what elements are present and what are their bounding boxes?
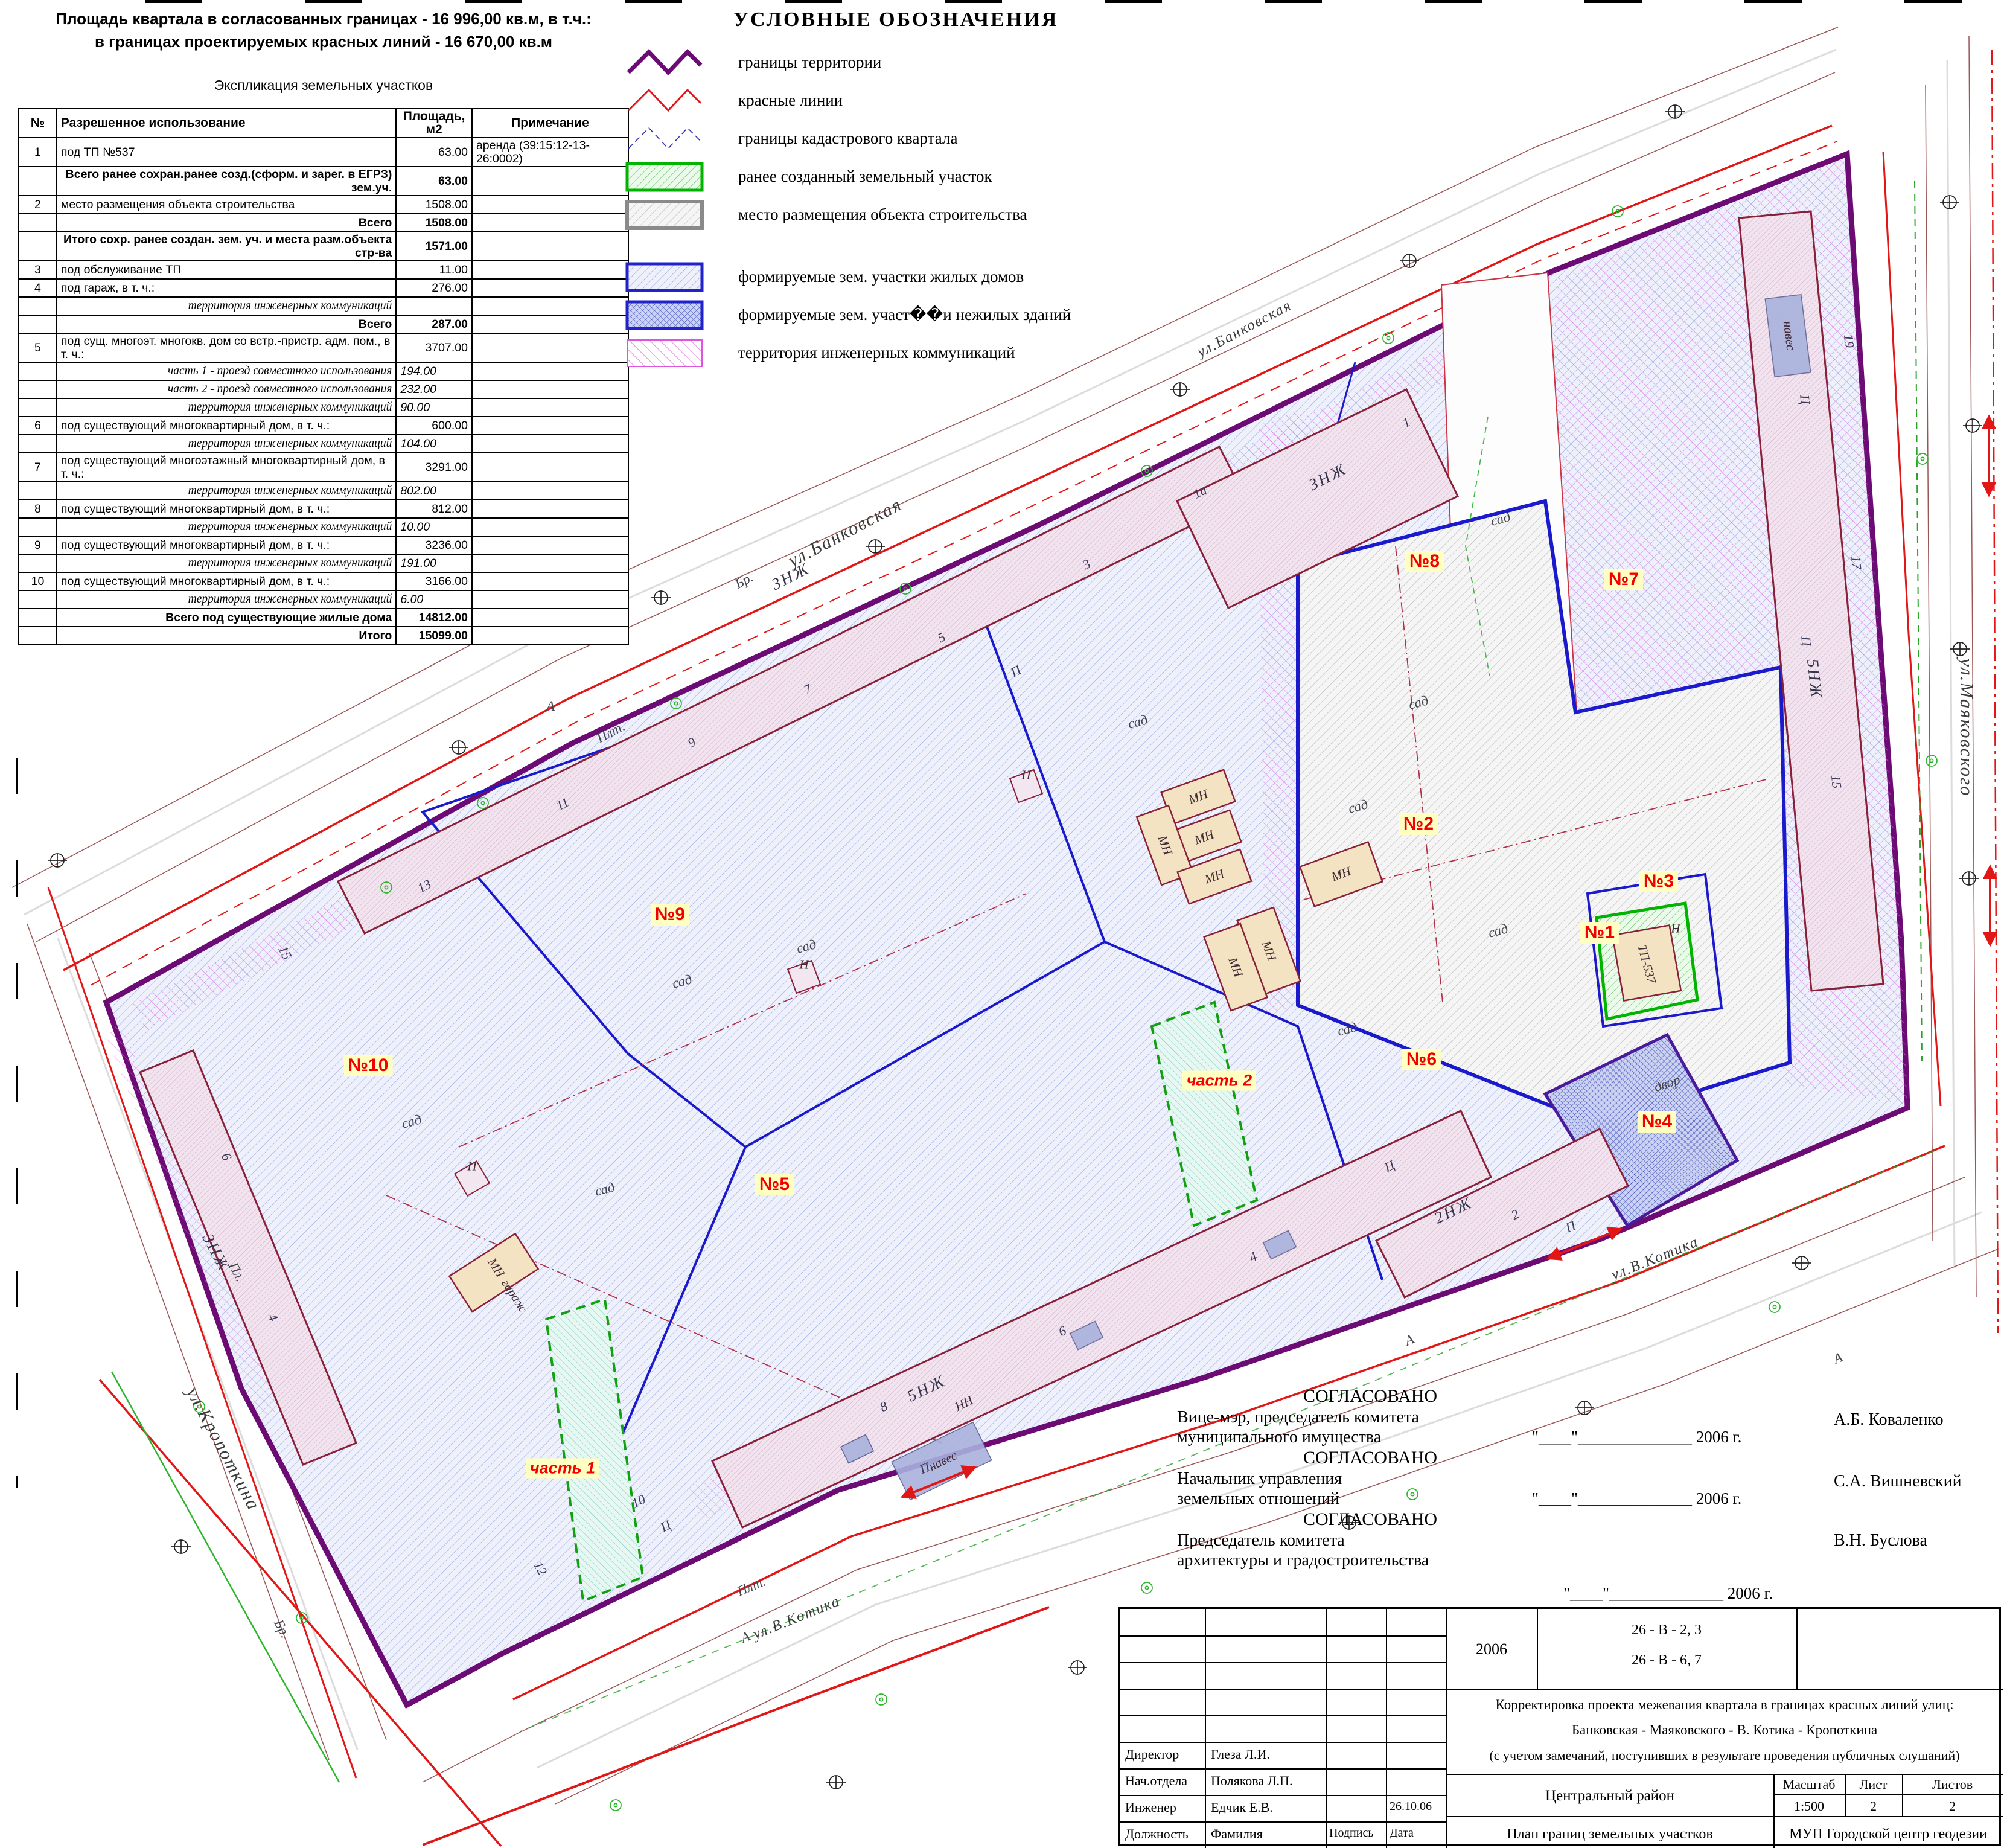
table-row: Итого 15099.00 bbox=[19, 627, 628, 645]
row-area: 1571.00 bbox=[396, 232, 472, 261]
staff-date: 26.10.06 bbox=[1390, 1800, 1432, 1814]
row-area: 14812.00 bbox=[396, 609, 472, 627]
row-num: 3 bbox=[19, 261, 57, 279]
n-label: Н bbox=[1671, 921, 1680, 936]
parcel-label-2: №2 bbox=[1399, 813, 1438, 835]
row-use: территория инженерных коммуникаций bbox=[57, 518, 396, 536]
row-use: территория инженерных коммуникаций bbox=[57, 297, 396, 315]
parcel-label-1: №1 bbox=[1580, 922, 1619, 944]
table-row: Всего под существующие жилые дома 14812.… bbox=[19, 609, 628, 627]
table-row: территория инженерных коммуникаций 104.0… bbox=[19, 435, 628, 453]
row-area bbox=[396, 297, 472, 315]
utility-territory-swatch bbox=[625, 336, 704, 370]
row-area: 3166.00 bbox=[396, 572, 472, 590]
table-row: 4 под гараж, в т. ч.: 276.00 bbox=[19, 279, 628, 297]
residential-parcels-swatch bbox=[625, 260, 704, 294]
row-area: 3707.00 bbox=[396, 333, 472, 362]
row-num bbox=[19, 167, 57, 196]
table-row: территория инженерных коммуникаций 802.0… bbox=[19, 482, 628, 500]
row-use: под гараж, в т. ч.: bbox=[57, 279, 396, 297]
approver-role: Начальник управления bbox=[1177, 1469, 1342, 1489]
row-area: 191.00 bbox=[396, 554, 472, 572]
row-note bbox=[472, 315, 628, 333]
legend-item: ранее созданный земельный участок bbox=[625, 158, 1162, 196]
row-note bbox=[472, 590, 628, 609]
org-cell: МУП Городской центр геодезии bbox=[1773, 1826, 2003, 1843]
row-note bbox=[472, 261, 628, 279]
approver-role: муниципального имущества bbox=[1177, 1428, 1381, 1447]
table-row: 2 место размещения объекта строительства… bbox=[19, 196, 628, 214]
row-note bbox=[472, 500, 628, 518]
scale-value: 1:500 bbox=[1773, 1798, 1845, 1814]
row-note bbox=[472, 167, 628, 196]
legend-item: место размещения объекта строительства bbox=[625, 196, 1162, 234]
row-use: место размещения объекта строительства bbox=[57, 196, 396, 214]
row-area: 104.00 bbox=[396, 435, 472, 453]
date-line: "____"______________ 2006 г. bbox=[1563, 1584, 1773, 1603]
existing-parcel-swatch bbox=[625, 160, 704, 194]
table-row: 1 под ТП №537 63.00 аренда (39:15:12-13-… bbox=[19, 138, 628, 167]
staff-name: Глеза Л.И. bbox=[1211, 1747, 1270, 1762]
table-row: территория инженерных коммуникаций 6.00 bbox=[19, 590, 628, 609]
row-area: 802.00 bbox=[396, 482, 472, 500]
table-row: 8 под существующий многоквартирный дом, … bbox=[19, 500, 628, 518]
date-line: "____"______________ 2006 г. bbox=[1532, 1428, 1741, 1447]
row-area: 10.00 bbox=[396, 518, 472, 536]
sheet-label: Лист bbox=[1845, 1777, 1902, 1792]
approver-name: С.А. Вишневский bbox=[1834, 1472, 1962, 1491]
approvals-block: СОГЛАСОВАНО Вице-мэр, председатель комит… bbox=[1177, 1372, 2001, 1613]
row-note bbox=[472, 453, 628, 482]
row-note bbox=[472, 435, 628, 453]
row-note bbox=[472, 398, 628, 417]
parcel-label-10: №10 bbox=[344, 1055, 393, 1076]
axis-marker: А bbox=[546, 699, 555, 714]
row-area: 812.00 bbox=[396, 500, 472, 518]
row-area: 1508.00 bbox=[396, 214, 472, 232]
row-num bbox=[19, 609, 57, 627]
legend-item: границы территории bbox=[625, 43, 1162, 82]
row-use: Итого сохр. ранее создан. зем. уч. и мес… bbox=[57, 232, 396, 261]
row-area: 63.00 bbox=[396, 138, 472, 167]
row-num: 4 bbox=[19, 279, 57, 297]
row-num bbox=[19, 214, 57, 232]
row-use: Всего ранее сохран.ранее созд.(сформ. и … bbox=[57, 167, 396, 196]
table-row: 7 под существующий многоэтажный многоква… bbox=[19, 453, 628, 482]
row-use: Всего под существующие жилые дома bbox=[57, 609, 396, 627]
parcel-label-6: №6 bbox=[1402, 1049, 1441, 1070]
table-row: 9 под существующий многоквартирный дом, … bbox=[19, 536, 628, 554]
staff-role: Директор bbox=[1125, 1747, 1179, 1762]
table-row: часть 1 - проезд совместного использован… bbox=[19, 362, 628, 380]
legend-title: УСЛОВНЫЕ ОБОЗНАЧЕНИЯ bbox=[733, 8, 1162, 31]
legend-item: формируемые зем. участ��и нежилых зданий bbox=[625, 296, 1162, 334]
sheet-ref: 26 - В - 6, 7 bbox=[1537, 1652, 1796, 1669]
parcel-label-7: №7 bbox=[1604, 569, 1643, 590]
row-note bbox=[472, 380, 628, 398]
row-use: территория инженерных коммуникаций bbox=[57, 482, 396, 500]
row-use: под существующий многоквартирный дом, в … bbox=[57, 536, 396, 554]
table-row: территория инженерных коммуникаций 10.00 bbox=[19, 518, 628, 536]
row-use: территория инженерных коммуникаций bbox=[57, 554, 396, 572]
footer-role-label: Должность bbox=[1125, 1826, 1189, 1842]
approver-role: земельных отношений bbox=[1177, 1489, 1339, 1509]
table-header-row: № Разрешенное использование Площадь,м2 П… bbox=[19, 109, 628, 138]
row-use: под сущ. многоэт. многокв. дом со встр.-… bbox=[57, 333, 396, 362]
row-area: 3236.00 bbox=[396, 536, 472, 554]
part-2-label: часть 2 bbox=[1182, 1071, 1256, 1091]
col-header-num: № bbox=[19, 109, 57, 138]
staff-name: Едчик Е.В. bbox=[1211, 1800, 1273, 1815]
row-area: 11.00 bbox=[396, 261, 472, 279]
parcel-label-9: №9 bbox=[651, 904, 689, 926]
row-num bbox=[19, 590, 57, 609]
row-num bbox=[19, 482, 57, 500]
project-title-1: Корректировка проекта межевания квартала… bbox=[1446, 1697, 2003, 1713]
row-area: 15099.00 bbox=[396, 627, 472, 645]
row-note bbox=[472, 297, 628, 315]
row-note bbox=[472, 333, 628, 362]
letter-marker: Ц bbox=[1796, 394, 1813, 406]
parcel-label-4: №4 bbox=[1638, 1111, 1676, 1133]
row-note bbox=[472, 362, 628, 380]
row-num bbox=[19, 380, 57, 398]
year-cell: 2006 bbox=[1446, 1640, 1537, 1658]
table-row: 5 под сущ. многоэт. многокв. дом со встр… bbox=[19, 333, 628, 362]
sheet-trim-marks-top bbox=[145, 0, 2003, 3]
territory-boundary-swatch bbox=[625, 46, 704, 80]
footer-sign-label: Подпись bbox=[1329, 1826, 1373, 1840]
row-note bbox=[472, 518, 628, 536]
cadastral-boundary-swatch bbox=[625, 122, 704, 156]
row-use: часть 2 - проезд совместного использован… bbox=[57, 380, 396, 398]
table-row: территория инженерных коммуникаций bbox=[19, 297, 628, 315]
table-row: Итого сохр. ранее создан. зем. уч. и мес… bbox=[19, 232, 628, 261]
plan-sheet: №1 №2 №3 №4 №5 №6 №7 №8 №9 №10 часть 1 ч… bbox=[0, 0, 2004, 1848]
explication-table: № Разрешенное использование Площадь,м2 П… bbox=[18, 108, 629, 645]
staff-name: Полякова Л.П. bbox=[1211, 1773, 1292, 1789]
table-title: Экспликация земельных участков bbox=[18, 77, 629, 94]
table-row: 3 под обслуживание ТП 11.00 bbox=[19, 261, 628, 279]
row-num: 2 bbox=[19, 196, 57, 214]
approved-stamp: СОГЛАСОВАНО bbox=[1249, 1386, 1491, 1407]
doc-name-cell: План границ земельных участков bbox=[1446, 1826, 1773, 1843]
row-num: 8 bbox=[19, 500, 57, 518]
row-use: часть 1 - проезд совместного использован… bbox=[57, 362, 396, 380]
legend: УСЛОВНЫЕ ОБОЗНАЧЕНИЯ границы территории … bbox=[625, 5, 1162, 372]
row-note bbox=[472, 417, 628, 435]
row-note bbox=[472, 214, 628, 232]
red-lines-swatch bbox=[625, 84, 704, 118]
approver-role: архитектуры и градостроительства bbox=[1177, 1551, 1429, 1570]
area-summary-line-1: Площадь квартала в согласованных граница… bbox=[18, 7, 629, 30]
row-note bbox=[472, 196, 628, 214]
footer-date-label: Дата bbox=[1390, 1826, 1414, 1840]
row-use: под существующий многоквартирный дом, в … bbox=[57, 572, 396, 590]
table-row: Всего 287.00 bbox=[19, 315, 628, 333]
staff-role: Нач.отдела bbox=[1125, 1773, 1187, 1789]
street-mayakovskogo: ул.Маяковского bbox=[1956, 658, 1977, 797]
row-note bbox=[472, 232, 628, 261]
approved-stamp: СОГЛАСОВАНО bbox=[1249, 1509, 1491, 1530]
explication-block: Площадь квартала в согласованных граница… bbox=[18, 7, 629, 645]
col-header-note: Примечание bbox=[472, 109, 628, 138]
row-area: 90.00 bbox=[396, 398, 472, 417]
row-note: аренда (39:15:12-13-26:0002) bbox=[472, 138, 628, 167]
row-use: Всего bbox=[57, 214, 396, 232]
row-num: 5 bbox=[19, 333, 57, 362]
row-num bbox=[19, 362, 57, 380]
approver-role: Вице-мэр, председатель комитета bbox=[1177, 1408, 1419, 1427]
sheet-value: 2 bbox=[1845, 1798, 1902, 1814]
row-num: 10 bbox=[19, 572, 57, 590]
footer-name-label: Фамилия bbox=[1211, 1826, 1263, 1842]
row-note bbox=[472, 572, 628, 590]
row-num bbox=[19, 232, 57, 261]
row-note bbox=[472, 554, 628, 572]
sheet-ref: 26 - В - 2, 3 bbox=[1537, 1622, 1796, 1639]
title-block: Директор Глеза Л.И. Нач.отдела Полякова … bbox=[1118, 1607, 2001, 1846]
row-num: 9 bbox=[19, 536, 57, 554]
row-area: 194.00 bbox=[396, 362, 472, 380]
row-use: территория инженерных коммуникаций bbox=[57, 435, 396, 453]
table-row: 10 под существующий многоквартирный дом,… bbox=[19, 572, 628, 590]
legend-item: формируемые зем. участки жилых домов bbox=[625, 258, 1162, 296]
row-use: территория инженерных коммуникаций bbox=[57, 590, 396, 609]
row-area: 287.00 bbox=[396, 315, 472, 333]
row-area: 1508.00 bbox=[396, 196, 472, 214]
n-label: Н bbox=[1021, 768, 1030, 783]
n-label: Н bbox=[799, 958, 808, 973]
table-row: территория инженерных коммуникаций 90.00 bbox=[19, 398, 628, 417]
house-number: 19 bbox=[1840, 334, 1857, 349]
part-1-label: часть 1 bbox=[526, 1459, 599, 1479]
row-area: 276.00 bbox=[396, 279, 472, 297]
legend-item: красные линии bbox=[625, 82, 1162, 120]
letter-marker: Ц bbox=[1798, 636, 1814, 647]
row-num: 1 bbox=[19, 138, 57, 167]
row-num bbox=[19, 297, 57, 315]
row-note bbox=[472, 627, 628, 645]
row-note bbox=[472, 279, 628, 297]
row-use: под существующий многоквартирный дом, в … bbox=[57, 500, 396, 518]
approver-name: А.Б. Коваленко bbox=[1834, 1410, 1944, 1430]
row-use: под существующий многоэтажный многокварт… bbox=[57, 453, 396, 482]
row-note bbox=[472, 536, 628, 554]
district-cell: Центральный район bbox=[1446, 1788, 1773, 1805]
row-num bbox=[19, 435, 57, 453]
table-row: Всего ранее сохран.ранее созд.(сформ. и … bbox=[19, 167, 628, 196]
row-use: под существующий многоквартирный дом, в … bbox=[57, 417, 396, 435]
approved-stamp: СОГЛАСОВАНО bbox=[1249, 1448, 1491, 1468]
row-num bbox=[19, 554, 57, 572]
row-num bbox=[19, 315, 57, 333]
legend-item: территория инженерных коммуникаций bbox=[625, 334, 1162, 372]
project-title-2: Банковская - Маяковского - В. Котика - К… bbox=[1446, 1722, 2003, 1738]
row-use: территория инженерных коммуникаций bbox=[57, 398, 396, 417]
row-num bbox=[19, 398, 57, 417]
staff-role: Инженер bbox=[1125, 1800, 1176, 1815]
table-row: территория инженерных коммуникаций 191.0… bbox=[19, 554, 628, 572]
col-header-area: Площадь,м2 bbox=[396, 109, 472, 138]
row-area: 6.00 bbox=[396, 590, 472, 609]
scale-label: Масштаб bbox=[1773, 1777, 1845, 1792]
nonresidential-parcels-swatch bbox=[625, 298, 704, 332]
row-num bbox=[19, 518, 57, 536]
approver-role: Председатель комитета bbox=[1177, 1531, 1345, 1550]
parcel-label-8: №8 bbox=[1405, 551, 1444, 572]
date-line: "____"______________ 2006 г. bbox=[1532, 1489, 1741, 1508]
table-row: Всего 1508.00 bbox=[19, 214, 628, 232]
n-label: Н bbox=[467, 1159, 476, 1174]
sheet-trim-marks-left bbox=[16, 758, 18, 1488]
sheets-label: Листов bbox=[1902, 1777, 2003, 1792]
house-number: 17 bbox=[1848, 555, 1865, 571]
sheets-value: 2 bbox=[1902, 1798, 2003, 1814]
row-num: 6 bbox=[19, 417, 57, 435]
row-use: Итого bbox=[57, 627, 396, 645]
row-area: 600.00 bbox=[396, 417, 472, 435]
row-note bbox=[472, 482, 628, 500]
construction-site-swatch bbox=[625, 198, 704, 232]
row-area: 63.00 bbox=[396, 167, 472, 196]
table-row: часть 2 - проезд совместного использован… bbox=[19, 380, 628, 398]
row-num bbox=[19, 627, 57, 645]
table-row: 6 под существующий многоквартирный дом, … bbox=[19, 417, 628, 435]
row-use: под ТП №537 bbox=[57, 138, 396, 167]
row-area: 232.00 bbox=[396, 380, 472, 398]
approver-name: В.Н. Буслова bbox=[1834, 1531, 1927, 1550]
area-summary-line-2: в границах проектируемых красных линий -… bbox=[18, 30, 629, 53]
row-note bbox=[472, 609, 628, 627]
project-title-3: (с учетом замечаний, поступивших в резул… bbox=[1446, 1748, 2003, 1763]
row-area: 3291.00 bbox=[396, 453, 472, 482]
parcel-label-3: №3 bbox=[1639, 871, 1678, 892]
house-number: 15 bbox=[1828, 775, 1845, 790]
legend-item: границы кадастрового квартала bbox=[625, 120, 1162, 158]
col-header-use: Разрешенное использование bbox=[57, 109, 396, 138]
row-num: 7 bbox=[19, 453, 57, 482]
row-use: под обслуживание ТП bbox=[57, 261, 396, 279]
parcel-label-5: №5 bbox=[755, 1174, 794, 1195]
row-use: Всего bbox=[57, 315, 396, 333]
